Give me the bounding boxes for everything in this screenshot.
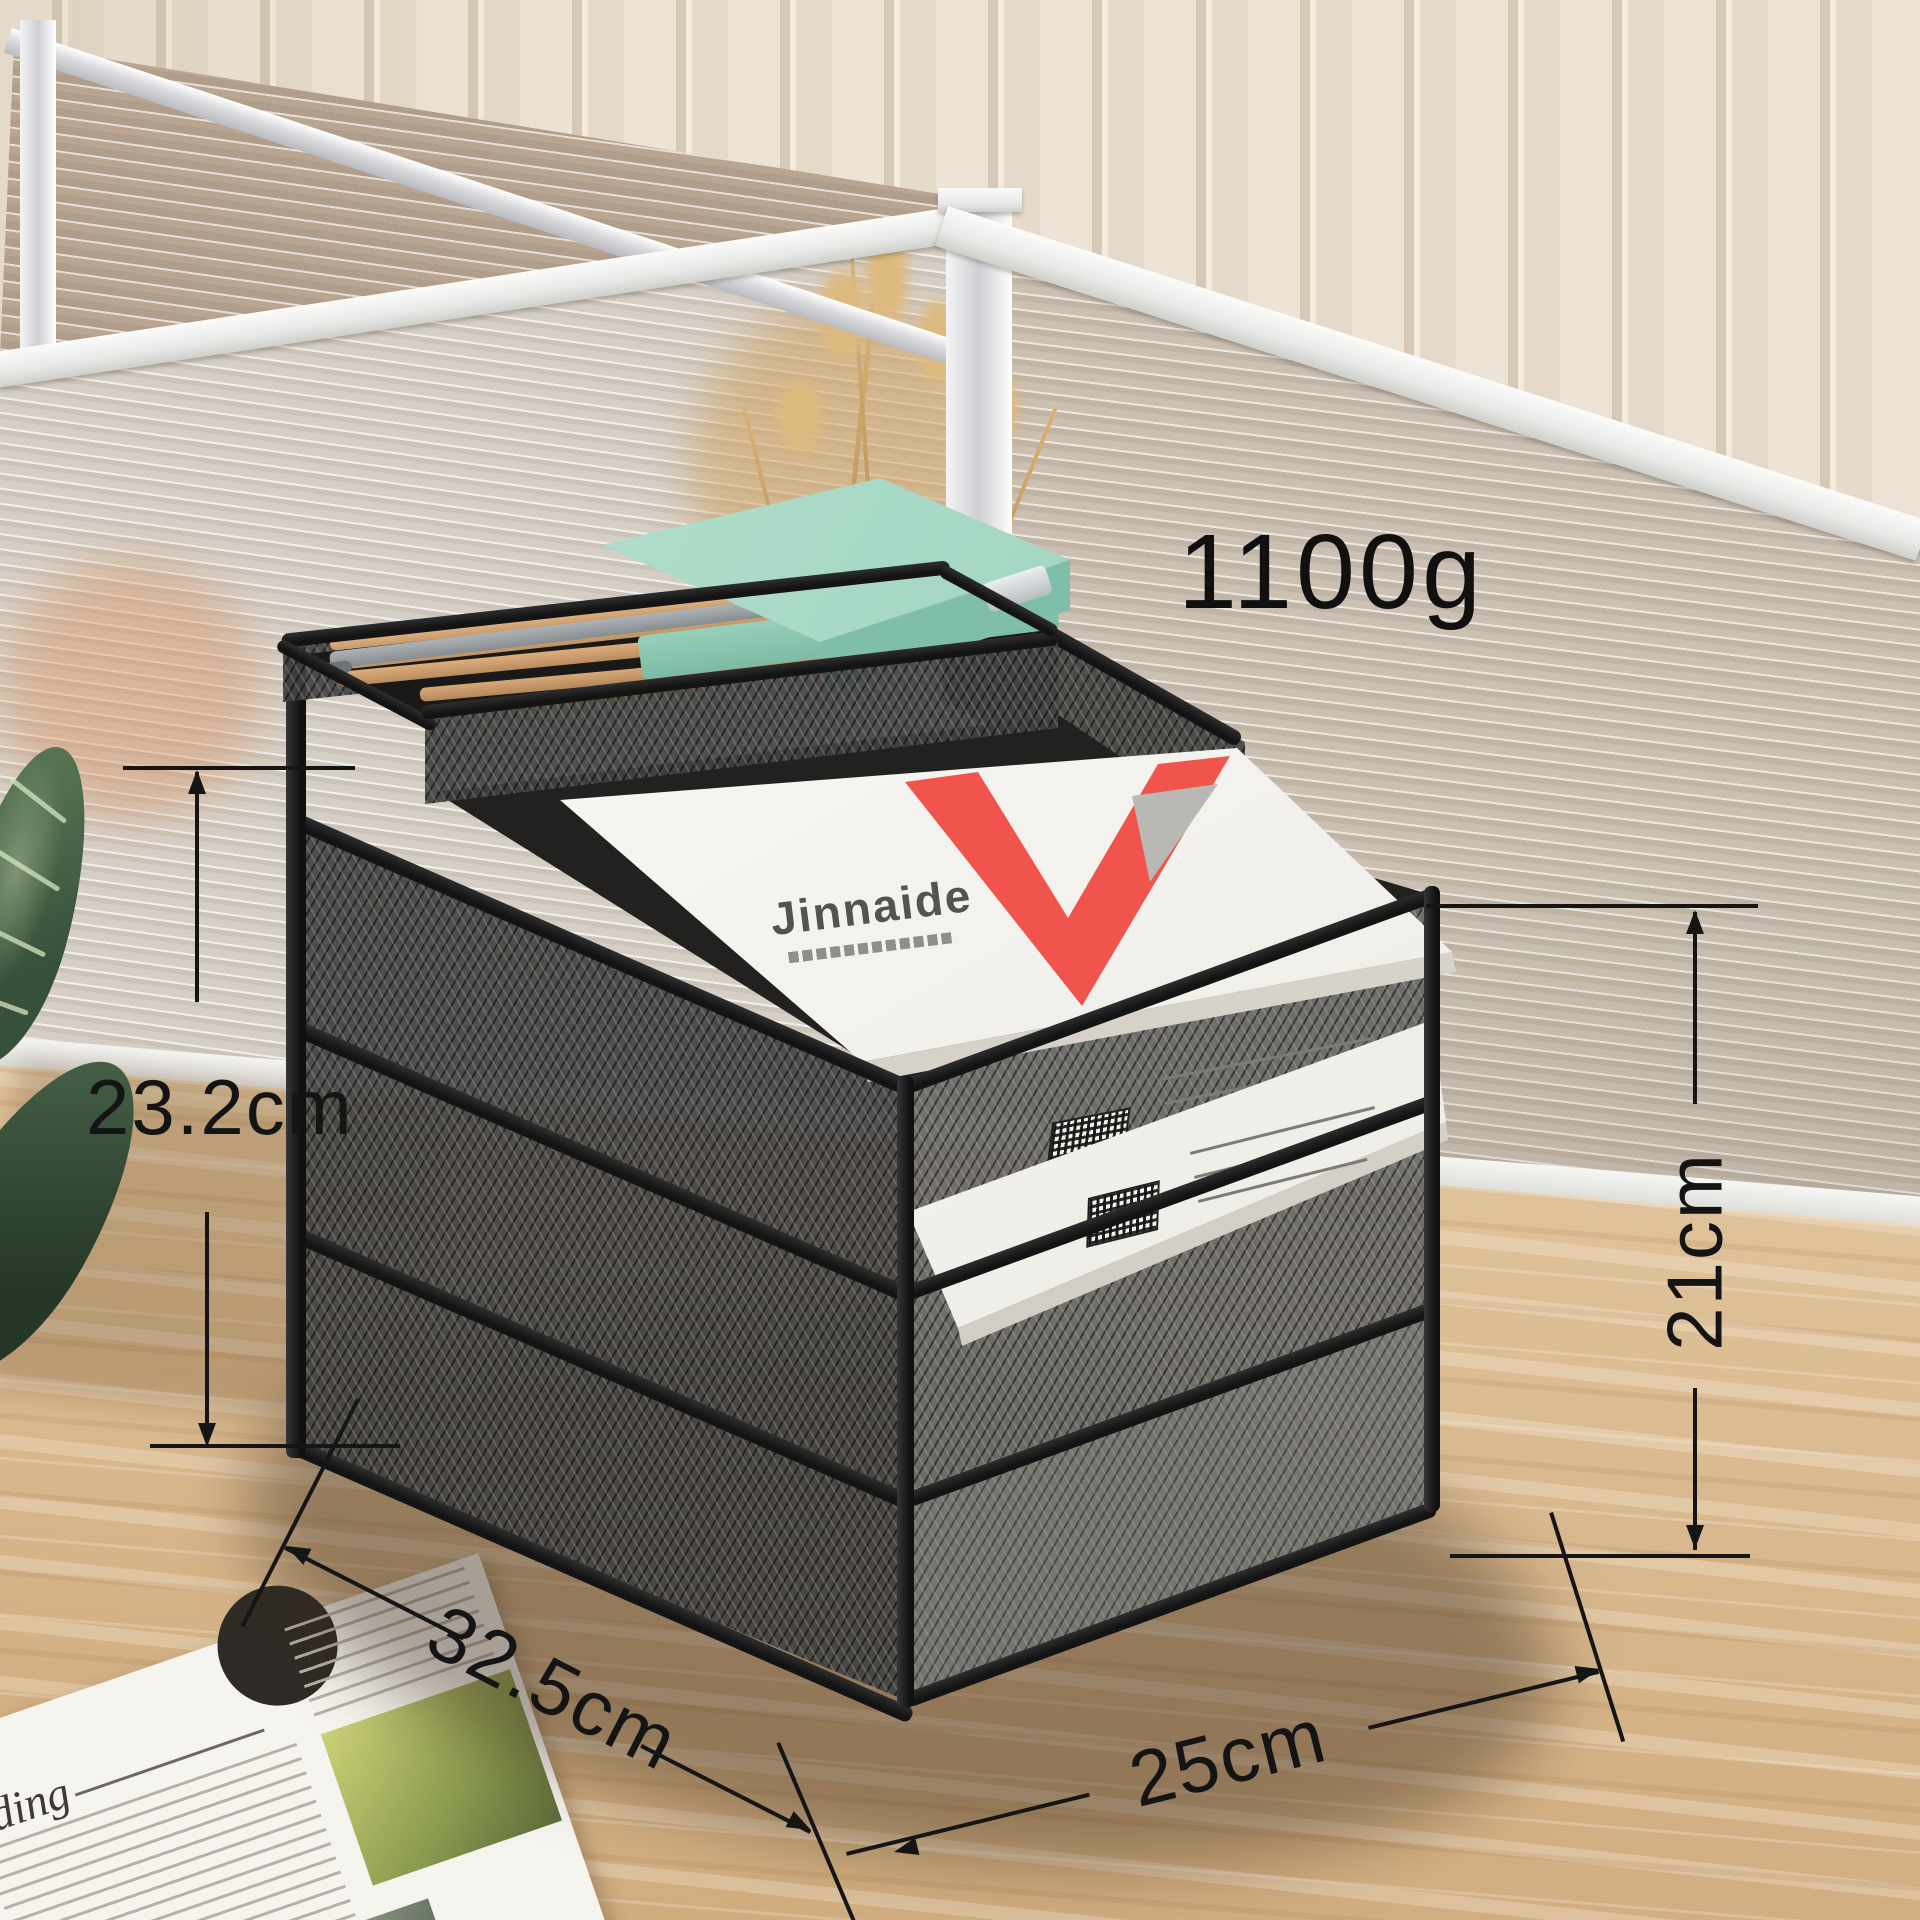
dim-total-height-top-tick [123, 766, 355, 770]
weight-label: 1100g [1178, 512, 1485, 633]
dim-arrow-down [1686, 1525, 1704, 1549]
leaf-vein [0, 984, 29, 1016]
flower-plume [778, 380, 822, 454]
leaf-vein [9, 777, 67, 824]
tray-corner-bar-front [897, 1076, 914, 1708]
tray-corner-bar-left [286, 640, 306, 1458]
dim-tray-height-label: 21cm [1650, 1102, 1741, 1402]
dim-arrow-up [1686, 910, 1704, 934]
dim-arrow-up [188, 770, 206, 794]
leaf-vein [0, 843, 61, 892]
product-photo-scene: nding Jinnaide [0, 0, 1920, 1920]
dim-total-height-bottom-tick [150, 1444, 400, 1448]
partition-post-left [20, 20, 56, 356]
dim-total-height-line-lower [205, 1212, 209, 1442]
dim-total-height-label: 23.2cm [86, 1062, 354, 1153]
tray-corner-bar-back [1424, 886, 1440, 1512]
dim-tray-height-line-upper [1693, 912, 1697, 1104]
dim-tray-height-top-tick [1426, 904, 1758, 908]
leaf-vein [0, 915, 46, 957]
dim-tray-height-bottom-tick [1450, 1554, 1750, 1558]
dim-total-height-line-upper [195, 772, 199, 1002]
